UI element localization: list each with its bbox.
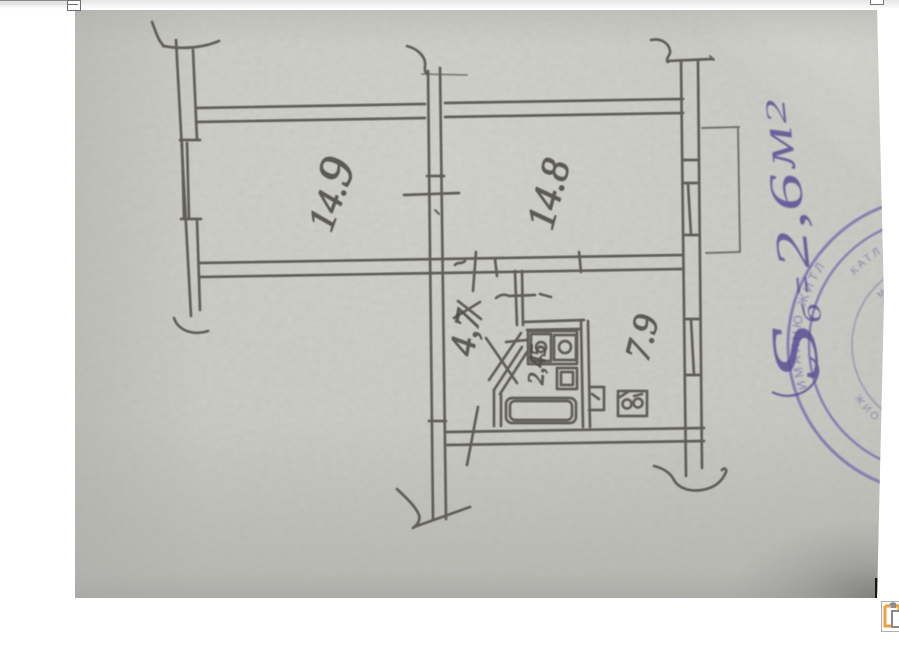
svg-text:2,45: 2,45 <box>523 343 551 385</box>
svg-text:=: = <box>778 272 825 299</box>
svg-text:м: м <box>750 124 805 174</box>
svg-text:4,7: 4,7 <box>441 305 489 358</box>
svg-text:S: S <box>757 321 834 386</box>
svg-text:2,6: 2,6 <box>759 171 820 272</box>
svg-text:2: 2 <box>760 97 793 125</box>
